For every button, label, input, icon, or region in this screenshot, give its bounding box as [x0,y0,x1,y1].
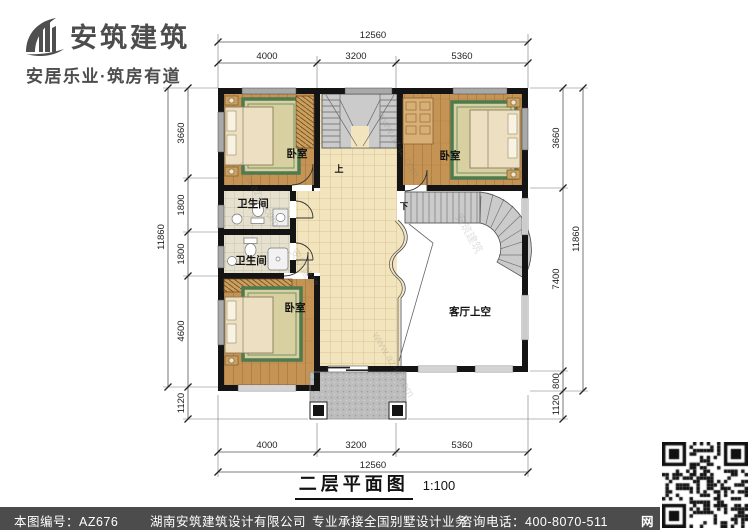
footer-company: 湖南安筑建筑设计有限公司 [150,511,306,530]
dim-right-seg3: 1120 [551,395,562,415]
label-bath1: 卫生间 [237,197,269,210]
main-staircase [322,94,397,148]
drawing-title: 二层平面图 [295,470,413,500]
dresser-tr [403,98,433,144]
wardrobe-tl [296,96,314,148]
dim-bottom-seg0: 4000 [256,440,277,451]
label-bath2: 卫生间 [235,254,267,267]
footer-phone: 咨询电话：400-8070-511 [460,511,608,530]
dim-top-total: 12560 [360,30,386,41]
dim-left-seg2: 1800 [176,243,187,264]
dim-bottom-seg2: 5360 [451,440,472,451]
label-bedroom-bl: 卧室 [285,301,306,314]
dim-right-seg1: 7400 [551,268,562,289]
dim-right-seg0: 3660 [551,127,562,148]
floor-plan: 卧室 卧室 卧室 卫生间 卫生间 客厅上空 上 下 [0,0,750,530]
dim-left-seg0: 3660 [176,122,187,143]
dim-right-total: 11860 [571,226,582,252]
dim-top-seg1: 3200 [345,51,366,62]
label-bedroom-tl: 卧室 [287,147,308,160]
dim-top-seg0: 4000 [256,51,277,62]
sheet-number: 本图编号：AZ676 [14,511,118,530]
drawing-title-row: 二层平面图 1:100 [0,470,750,500]
dim-right-seg2: 800 [551,373,562,389]
qr-code [662,442,748,528]
label-bedroom-tr: 卧室 [440,149,461,162]
dim-left-seg4: 1120 [176,393,187,413]
drawing-sheet: 安筑建筑 安居乐业·筑房有道 [0,0,750,530]
dim-bottom-seg1: 3200 [345,440,366,451]
drawing-scale: 1:100 [423,478,456,493]
label-stair-down: 下 [400,201,409,211]
footer-service: 专业承接全国别墅设计业务 [312,511,468,530]
balcony-sliding-door [328,366,368,372]
dim-top-seg2: 5360 [451,51,472,62]
dim-left-seg3: 4600 [176,320,187,341]
web-badge: 网 [641,511,654,530]
qr-code-block [660,440,750,530]
label-stair-up: 上 [334,163,343,174]
footer-bar: 本图编号：AZ676 湖南安筑建筑设计有限公司 专业承接全国别墅设计业务 咨询电… [0,507,750,530]
label-living-void: 客厅上空 [448,305,491,318]
dim-left-total: 11860 [156,224,167,250]
dim-left-seg1: 1800 [176,194,187,215]
